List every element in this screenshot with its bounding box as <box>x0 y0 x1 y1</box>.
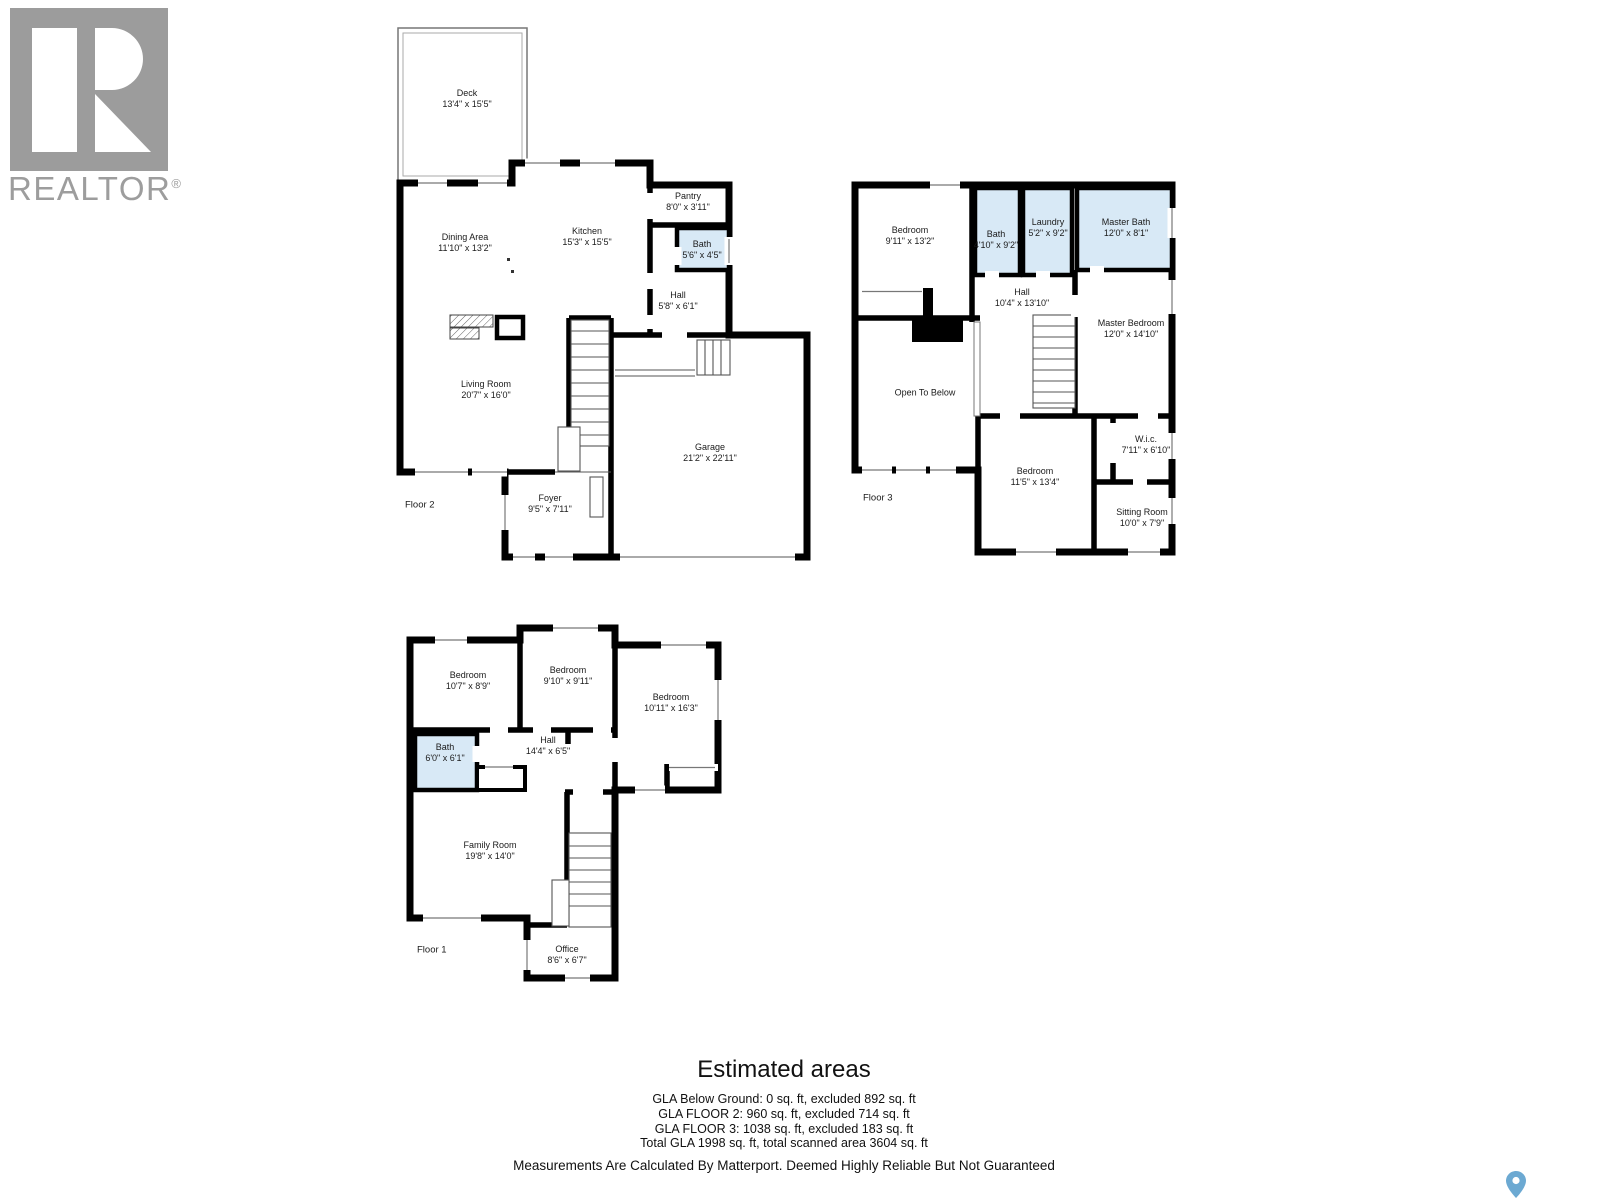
room-name: Hall <box>995 287 1049 298</box>
room-name: Master Bedroom <box>1098 318 1165 329</box>
room-label: Bedroom 10'7" x 8'9" <box>446 670 490 692</box>
room-dims: 9'10" x 9'11" <box>544 676 593 687</box>
room-label: Laundry 5'2" x 9'2" <box>1028 217 1067 239</box>
room-dims: 8'6" x 6'7" <box>547 955 586 966</box>
room-dims: 12'0" x 8'1" <box>1102 228 1151 239</box>
room-name: Garage <box>683 442 737 453</box>
floor-tag: Floor 3 <box>863 493 893 504</box>
room-dims: 10'0" x 7'9" <box>1116 518 1168 529</box>
floor2-plan: Deck 13'4" x 15'5" Dining Area 11'10" x … <box>395 25 815 565</box>
floorplan-page: REALTOR® <box>0 0 1600 1200</box>
realtor-logo-icon <box>10 8 168 176</box>
room-name: Bath <box>682 239 721 250</box>
room-label: Garage 21'2" x 22'11" <box>683 442 737 464</box>
room-label: Master Bedroom 12'0" x 14'10" <box>1098 318 1165 340</box>
room-dims: 19'8" x 14'0" <box>463 851 516 862</box>
room-label: Hall 5'8" x 6'1" <box>658 290 697 312</box>
room-name: Kitchen <box>562 226 611 237</box>
room-dims: 5'6" x 4'5" <box>682 250 721 261</box>
room-label: Master Bath 12'0" x 8'1" <box>1102 217 1151 239</box>
disclaimer-text: Measurements Are Calculated By Matterpor… <box>0 1158 1568 1173</box>
room-name: Master Bath <box>1102 217 1151 228</box>
room-label: Open To Below <box>895 388 956 399</box>
room-name: Pantry <box>666 191 710 202</box>
room-dims: 15'3" x 15'5" <box>562 237 611 248</box>
room-dims: 9'5" x 7'11" <box>528 504 572 515</box>
room-dims: 8'0" x 3'11" <box>666 202 710 213</box>
room-label: Family Room 19'8" x 14'0" <box>463 840 516 862</box>
room-dims: 10'11" x 16'3" <box>644 703 698 714</box>
floor1-plan: Bedroom 10'7" x 8'9" Bedroom 9'10" x 9'1… <box>405 620 725 985</box>
room-dims: 9'11" x 13'2" <box>886 236 935 247</box>
room-label: Office 8'6" x 6'7" <box>547 944 586 966</box>
room-name: Foyer <box>528 493 572 504</box>
room-label: Foyer 9'5" x 7'11" <box>528 493 572 515</box>
room-name: Open To Below <box>895 388 956 399</box>
room-name: W.i.c. <box>1122 434 1171 445</box>
room-label: Bedroom 10'11" x 16'3" <box>644 692 698 714</box>
estimated-areas-section: Estimated areas GLA Below Ground: 0 sq. … <box>0 1056 1568 1151</box>
room-label: Hall 14'4" x 6'5" <box>526 735 570 757</box>
room-label: Kitchen 15'3" x 15'5" <box>562 226 611 248</box>
room-dims: 10'4" x 13'10" <box>995 298 1049 309</box>
room-label: Bath 6'0" x 6'1" <box>425 742 464 764</box>
floor-tag: Floor 2 <box>405 500 435 511</box>
room-dims: 11'10" x 13'2" <box>438 243 492 254</box>
realtor-logo-wordmark: REALTOR® <box>8 170 181 208</box>
room-name: Bedroom <box>446 670 490 681</box>
gla-line: GLA FLOOR 3: 1038 sq. ft, excluded 183 s… <box>0 1122 1568 1137</box>
room-label: Sitting Room 10'0" x 7'9" <box>1116 507 1168 529</box>
floor-tag: Floor 1 <box>417 945 447 956</box>
room-name: Bedroom <box>544 665 593 676</box>
room-name: Bedroom <box>644 692 698 703</box>
room-name: Dining Area <box>438 232 492 243</box>
brand-text: REALTOR <box>8 170 171 207</box>
room-name: Hall <box>658 290 697 301</box>
room-label: Deck 13'4" x 15'5" <box>442 88 491 110</box>
room-dims: 6'0" x 6'1" <box>425 753 464 764</box>
gla-line: GLA FLOOR 2: 960 sq. ft, excluded 714 sq… <box>0 1107 1568 1122</box>
room-name: Office <box>547 944 586 955</box>
room-label: Dining Area 11'10" x 13'2" <box>438 232 492 254</box>
room-name: Living Room <box>461 379 511 390</box>
map-pin-icon <box>1506 1171 1526 1200</box>
room-dims: 13'4" x 15'5" <box>442 99 491 110</box>
room-dims: 12'0" x 14'10" <box>1098 329 1165 340</box>
room-name: Bedroom <box>1011 466 1060 477</box>
room-name: Laundry <box>1028 217 1067 228</box>
room-dims: 20'7" x 16'0" <box>461 390 511 401</box>
room-dims: 21'2" x 22'11" <box>683 453 737 464</box>
room-dims: 5'8" x 6'1" <box>658 301 697 312</box>
room-dims: 10'7" x 8'9" <box>446 681 490 692</box>
room-label: Pantry 8'0" x 3'11" <box>666 191 710 213</box>
room-label: Bath 4'10" x 9'2" <box>974 229 1018 251</box>
room-label: Bedroom 9'10" x 9'11" <box>544 665 593 687</box>
room-label: Bedroom 11'5" x 13'4" <box>1011 466 1060 488</box>
room-name: Hall <box>526 735 570 746</box>
estimated-areas-title: Estimated areas <box>0 1056 1568 1084</box>
room-dims: 7'11" x 6'10" <box>1122 445 1171 456</box>
registered-mark: ® <box>171 176 181 191</box>
room-name: Bath <box>974 229 1018 240</box>
room-name: Bath <box>425 742 464 753</box>
room-label: Living Room 20'7" x 16'0" <box>461 379 511 401</box>
gla-line: GLA Below Ground: 0 sq. ft, excluded 892… <box>0 1092 1568 1107</box>
room-dims: 11'5" x 13'4" <box>1011 477 1060 488</box>
room-name: Deck <box>442 88 491 99</box>
room-label: Bedroom 9'11" x 13'2" <box>886 225 935 247</box>
room-dims: 5'2" x 9'2" <box>1028 228 1067 239</box>
room-dims: 14'4" x 6'5" <box>526 746 570 757</box>
room-name: Bedroom <box>886 225 935 236</box>
room-label: Bath 5'6" x 4'5" <box>682 239 721 261</box>
room-label: Hall 10'4" x 13'10" <box>995 287 1049 309</box>
floor3-plan: Bedroom 9'11" x 13'2" Bath 4'10" x 9'2" … <box>850 180 1180 562</box>
gla-line: Total GLA 1998 sq. ft, total scanned are… <box>0 1136 1568 1151</box>
room-name: Sitting Room <box>1116 507 1168 518</box>
room-label: W.i.c. 7'11" x 6'10" <box>1122 434 1171 456</box>
room-dims: 4'10" x 9'2" <box>974 240 1018 251</box>
room-name: Family Room <box>463 840 516 851</box>
